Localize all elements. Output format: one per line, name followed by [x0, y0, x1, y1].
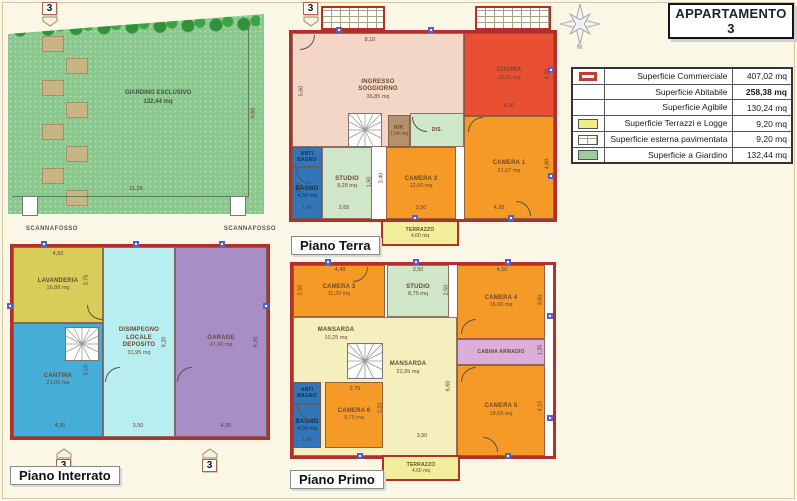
room-name: CAMERA 1 [493, 160, 526, 168]
dim-label: 4,80 [544, 159, 550, 170]
dim-label: 8,10 [340, 37, 400, 43]
entry-arrow-down-icon [303, 16, 319, 27]
legend-value: 258,38 mq [732, 84, 792, 100]
legend-swatch-cell [572, 116, 604, 132]
legend-value: 132,44 mq [732, 147, 792, 163]
piano-primo-plan: CAMERA 3 11,20 mq STUDIO 8,75 mq CAMERA … [290, 262, 556, 459]
paved-area-right [475, 6, 551, 30]
window-marker [505, 259, 511, 265]
window-marker [219, 241, 225, 247]
commercial-outline-swatch [579, 72, 597, 81]
dim-label: 1,50 [296, 183, 302, 194]
scannafosso-well [22, 196, 38, 216]
exit-arrow-up-icon [56, 448, 72, 459]
dim-label: 4,35 [35, 423, 85, 429]
stepping-stone [66, 190, 88, 206]
room-area: 1,54 mq [390, 131, 408, 138]
room-name: STUDIO [406, 284, 430, 292]
floor-label-primo: Piano Primo [290, 470, 384, 489]
stepping-stone [42, 124, 64, 140]
window-marker [7, 303, 13, 309]
stepping-stone [66, 102, 88, 118]
dim-label: 3,40 [378, 173, 384, 184]
dimension-line [12, 196, 249, 197]
room-area: 18,06 mq [498, 75, 521, 82]
garden-label: GIARDINO ESCLUSIVO 132,44 mq [88, 89, 228, 107]
compass-rose: N [560, 4, 604, 56]
room-area: 9,28 mq [337, 183, 357, 190]
stepping-stone [42, 168, 64, 184]
room-name: STUDIO [335, 176, 359, 184]
stepping-stone [66, 58, 88, 74]
room-name: INGRESSO SOGGIORNO [343, 79, 413, 95]
window-marker [357, 453, 363, 459]
garden-section: 3 GIARDINO ESCLUSIVO 132,44 mq 9,65 11,2… [8, 2, 266, 242]
dim-label: 4,30 [484, 103, 534, 109]
legend-value: 407,02 mq [732, 68, 792, 84]
garden-dim-right: 9,65 [250, 108, 256, 119]
unit-marker: 3 [202, 459, 217, 472]
room-name: CAMERA 4 [485, 295, 518, 303]
exit-arrow-up-icon [202, 448, 218, 459]
entry-arrow-down-icon [42, 16, 58, 27]
legend-swatch-cell [572, 100, 604, 116]
stepping-stone [42, 80, 64, 96]
window-marker [133, 241, 139, 247]
window-marker [548, 173, 554, 179]
dim-label: 4,15 [537, 401, 543, 412]
unit-marker: 3 [303, 2, 318, 15]
paved-swatch [578, 135, 598, 145]
room-name: CAMERA 5 [485, 403, 518, 411]
room-area: 21,07 mq [498, 168, 521, 175]
garden-area-value: 132,44 mq [88, 98, 228, 107]
window-marker [413, 259, 419, 265]
room-terrazzo-terra: TERRAZZO 4,60 mq [381, 220, 459, 246]
room-name: ANTI BAGNO [294, 151, 320, 164]
window-marker [547, 313, 553, 319]
scannafosso-label-left: SCANNAFOSSO [14, 226, 90, 232]
window-marker [505, 453, 511, 459]
room-name: DISIMPEGNO LOCALE DEPOSITO [113, 327, 165, 350]
room-area: 11,20 mq [328, 291, 351, 298]
empty-swatch [578, 103, 598, 113]
dimension-line [248, 24, 249, 196]
legend-label: Superficie Terrazzi e Logge [604, 116, 732, 132]
room-area: 10,25 mq [301, 335, 371, 342]
room-area: 36,85 mq [367, 94, 390, 101]
empty-swatch [578, 87, 598, 97]
legend-row: Superficie Terrazzi e Logge 9,20 mq [572, 116, 792, 132]
piano-interrato-plan: LAVANDERIA 16,88 mq CANTINA 21,05 mq DIS… [10, 244, 270, 440]
dim-label: 9,20 [253, 337, 259, 348]
room-area: 8,75 mq [408, 291, 428, 298]
room-rip: RIP. 1,54 mq [388, 115, 410, 147]
dim-label: 3,60 [537, 295, 543, 306]
floor-label-terra: Piano Terra [291, 236, 380, 255]
unit-marker-number: 3 [308, 3, 314, 14]
legend-label: Superficie Abitabile [604, 84, 732, 100]
room-area: 4,60 mq [411, 233, 429, 240]
window-marker [548, 67, 554, 73]
piano-terra-section: 3 INGRESSO SOGGIORNO 36,85 mq CUCINA 18,… [289, 2, 559, 258]
room-name: LAVANDERIA [38, 278, 78, 286]
legend-row: Superficie Abitabile 258,38 mq [572, 84, 792, 100]
dim-label: 2,79 [333, 386, 377, 392]
dim-label: 2,50 [443, 285, 449, 296]
room-area: 22,95 mq [373, 369, 443, 376]
legend-swatch-cell [572, 147, 604, 163]
legend-label: Superficie a Giardino [604, 147, 732, 163]
stepping-stone [42, 36, 64, 52]
unit-marker: 3 [42, 2, 57, 15]
unit-marker-number: 3 [207, 460, 213, 471]
legend-swatch-cell [572, 68, 604, 84]
dim-label: 4,35 [201, 423, 251, 429]
dim-label: 9,20 [161, 337, 167, 348]
legend-label: Superficie Agibile [604, 100, 732, 116]
paved-area-left [321, 6, 385, 30]
piano-terra-plan: INGRESSO SOGGIORNO 36,85 mq CUCINA 18,06… [289, 30, 557, 222]
room-name: CAMERA 3 [323, 284, 356, 292]
room-name: CANTINA [44, 373, 72, 381]
dim-label: 1,35 [537, 345, 543, 356]
room-name: DIS. [432, 127, 443, 134]
piano-interrato-section: LAVANDERIA 16,88 mq CANTINA 21,05 mq DIS… [10, 244, 272, 496]
room-cabina-armadio: CABINA ARMADIO [457, 339, 545, 365]
dim-label: 3,50 [397, 433, 447, 439]
room-name: CUCINA [497, 67, 522, 75]
dim-label: 2,50 [297, 285, 303, 296]
dim-label: 6,60 [445, 381, 451, 392]
dim-label: 3,50 [393, 267, 443, 273]
window-marker [325, 259, 331, 265]
legend-swatch-cell [572, 131, 604, 147]
garden-dim-bottom: 11,25 [116, 186, 156, 192]
dim-label: 1,60 [293, 437, 321, 443]
legend-label: Superficie Commerciale [604, 68, 732, 84]
window-marker [336, 27, 342, 33]
room-area: 9,75 mq [344, 415, 364, 422]
room-name: ANTI BAGNO [295, 387, 319, 400]
floor-label-interrato: Piano Interrato [10, 466, 120, 485]
room-antibagno-primo: ANTI BAGNO [293, 382, 321, 404]
legend-value: 130,24 mq [732, 100, 792, 116]
dim-label: 5,60 [298, 86, 304, 97]
legend-swatch-cell [572, 84, 604, 100]
room-mansarda-1-label: MANSARDA 10,25 mq [301, 327, 371, 342]
dim-label: 1,50 [366, 177, 372, 188]
dim-label: 5,10 [83, 365, 89, 376]
scannafosso-well [230, 196, 246, 216]
legend-row: Superficie esterna pavimentata 9,20 mq [572, 131, 792, 147]
compass-north-label: N [577, 44, 582, 51]
apartment-title: APPARTAMENTO 3 [668, 3, 794, 39]
compass-star-icon [560, 4, 600, 44]
room-name: BAGNO [295, 419, 318, 427]
room-antibagno: ANTI BAGNO [292, 147, 322, 167]
room-area: 16,00 mq [490, 302, 513, 309]
garden-swatch [578, 150, 598, 160]
dim-label: 1,60 [292, 205, 322, 211]
window-marker [263, 303, 269, 309]
room-name: CAMERA 2 [405, 176, 438, 184]
room-area: 41,40 mq [210, 342, 233, 349]
legend-value: 9,20 mq [732, 131, 792, 147]
legend-row: Superficie a Giardino 132,44 mq [572, 147, 792, 163]
room-name: MANSARDA [373, 361, 443, 369]
piano-primo-section: CAMERA 3 11,20 mq STUDIO 8,75 mq CAMERA … [290, 262, 560, 497]
window-marker [547, 415, 553, 421]
legend-value: 9,20 mq [732, 116, 792, 132]
stepping-stone [66, 146, 88, 162]
window-marker [41, 241, 47, 247]
room-name: MANSARDA [301, 327, 371, 335]
room-area: 18,69 mq [490, 411, 513, 418]
spiral-stairs-icon [348, 113, 382, 147]
dim-label: 3,50 [113, 423, 163, 429]
garden-name: GIARDINO ESCLUSIVO [88, 89, 228, 98]
room-area: 4,00 mq [297, 193, 317, 200]
dim-label: 4,50 [475, 267, 529, 273]
legend-row: Superficie Agibile 130,24 mq [572, 100, 792, 116]
scannafosso-label-right: SCANNAFOSSO [212, 226, 288, 232]
room-area: 12,60 mq [410, 183, 433, 190]
surface-legend-table: Superficie Commerciale 407,02 mq Superfi… [571, 67, 793, 164]
room-area: 4,00 mq [297, 426, 317, 433]
spiral-stairs-icon [347, 343, 383, 379]
room-area: 16,88 mq [47, 285, 70, 292]
legend-label: Superficie esterna pavimentata [604, 131, 732, 147]
spiral-stairs-icon [65, 327, 99, 361]
dim-label: 3,50 [396, 205, 446, 211]
window-marker [508, 215, 514, 221]
window-marker [428, 27, 434, 33]
unit-marker-number: 3 [47, 3, 53, 14]
room-area: 4,60 mq [412, 468, 430, 475]
room-area: 31,95 mq [128, 350, 151, 357]
room-name: CABINA ARMADIO [477, 349, 524, 356]
terrace-swatch [578, 119, 598, 129]
dim-label: 3,23 [377, 403, 383, 414]
legend-row: Superficie Commerciale 407,02 mq [572, 68, 792, 84]
dim-label: 3,75 [83, 275, 89, 286]
room-terrazzo-primo: TERRAZZO 4,60 mq [382, 455, 460, 481]
dim-label: 4,50 [31, 251, 85, 257]
room-name: CAMERA 6 [338, 408, 371, 416]
dim-label: 2,65 [322, 205, 366, 211]
room-name: GARAGE [207, 335, 235, 343]
room-area: 21,05 mq [47, 380, 70, 387]
garden-area: GIARDINO ESCLUSIVO 132,44 mq 9,65 11,25 [8, 14, 264, 214]
room-mansarda-2-label: MANSARDA 22,95 mq [373, 361, 443, 376]
floorplan-sheet: 3 GIARDINO ESCLUSIVO 132,44 mq 9,65 11,2… [0, 0, 797, 501]
